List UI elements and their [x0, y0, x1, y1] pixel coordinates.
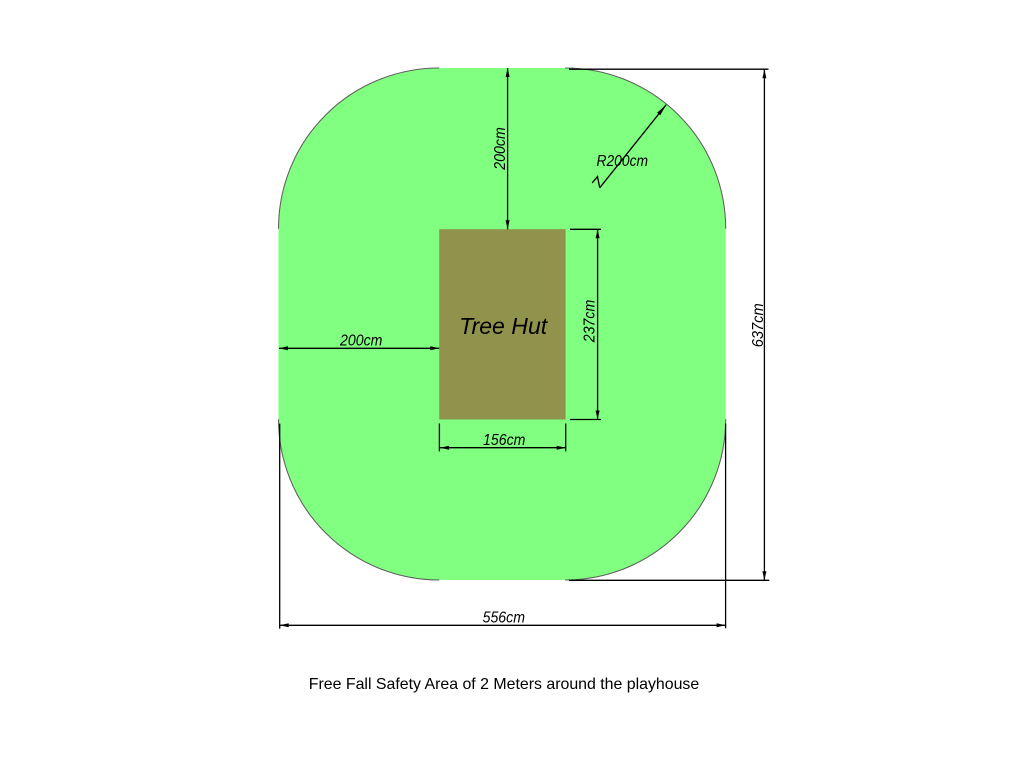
svg-text:237cm: 237cm	[581, 300, 598, 343]
svg-text:Tree Hut: Tree Hut	[459, 313, 549, 339]
svg-text:637cm: 637cm	[750, 303, 767, 347]
svg-text:156cm: 156cm	[483, 432, 525, 449]
svg-text:Free Fall Safety Area of 2 Met: Free Fall Safety Area of 2 Meters around…	[309, 676, 700, 693]
svg-text:556cm: 556cm	[483, 609, 525, 626]
svg-text:R200cm: R200cm	[597, 153, 649, 170]
svg-text:200cm: 200cm	[339, 333, 382, 350]
svg-text:200cm: 200cm	[492, 127, 509, 170]
